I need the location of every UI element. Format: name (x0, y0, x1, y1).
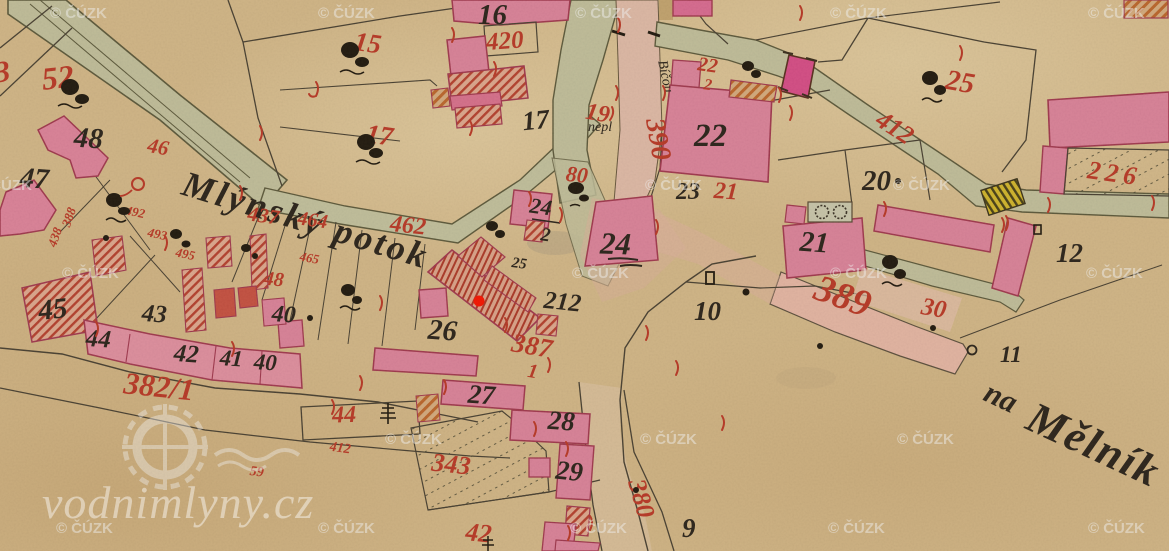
svg-text:vodnimlyny.cz: vodnimlyny.cz (42, 477, 314, 528)
